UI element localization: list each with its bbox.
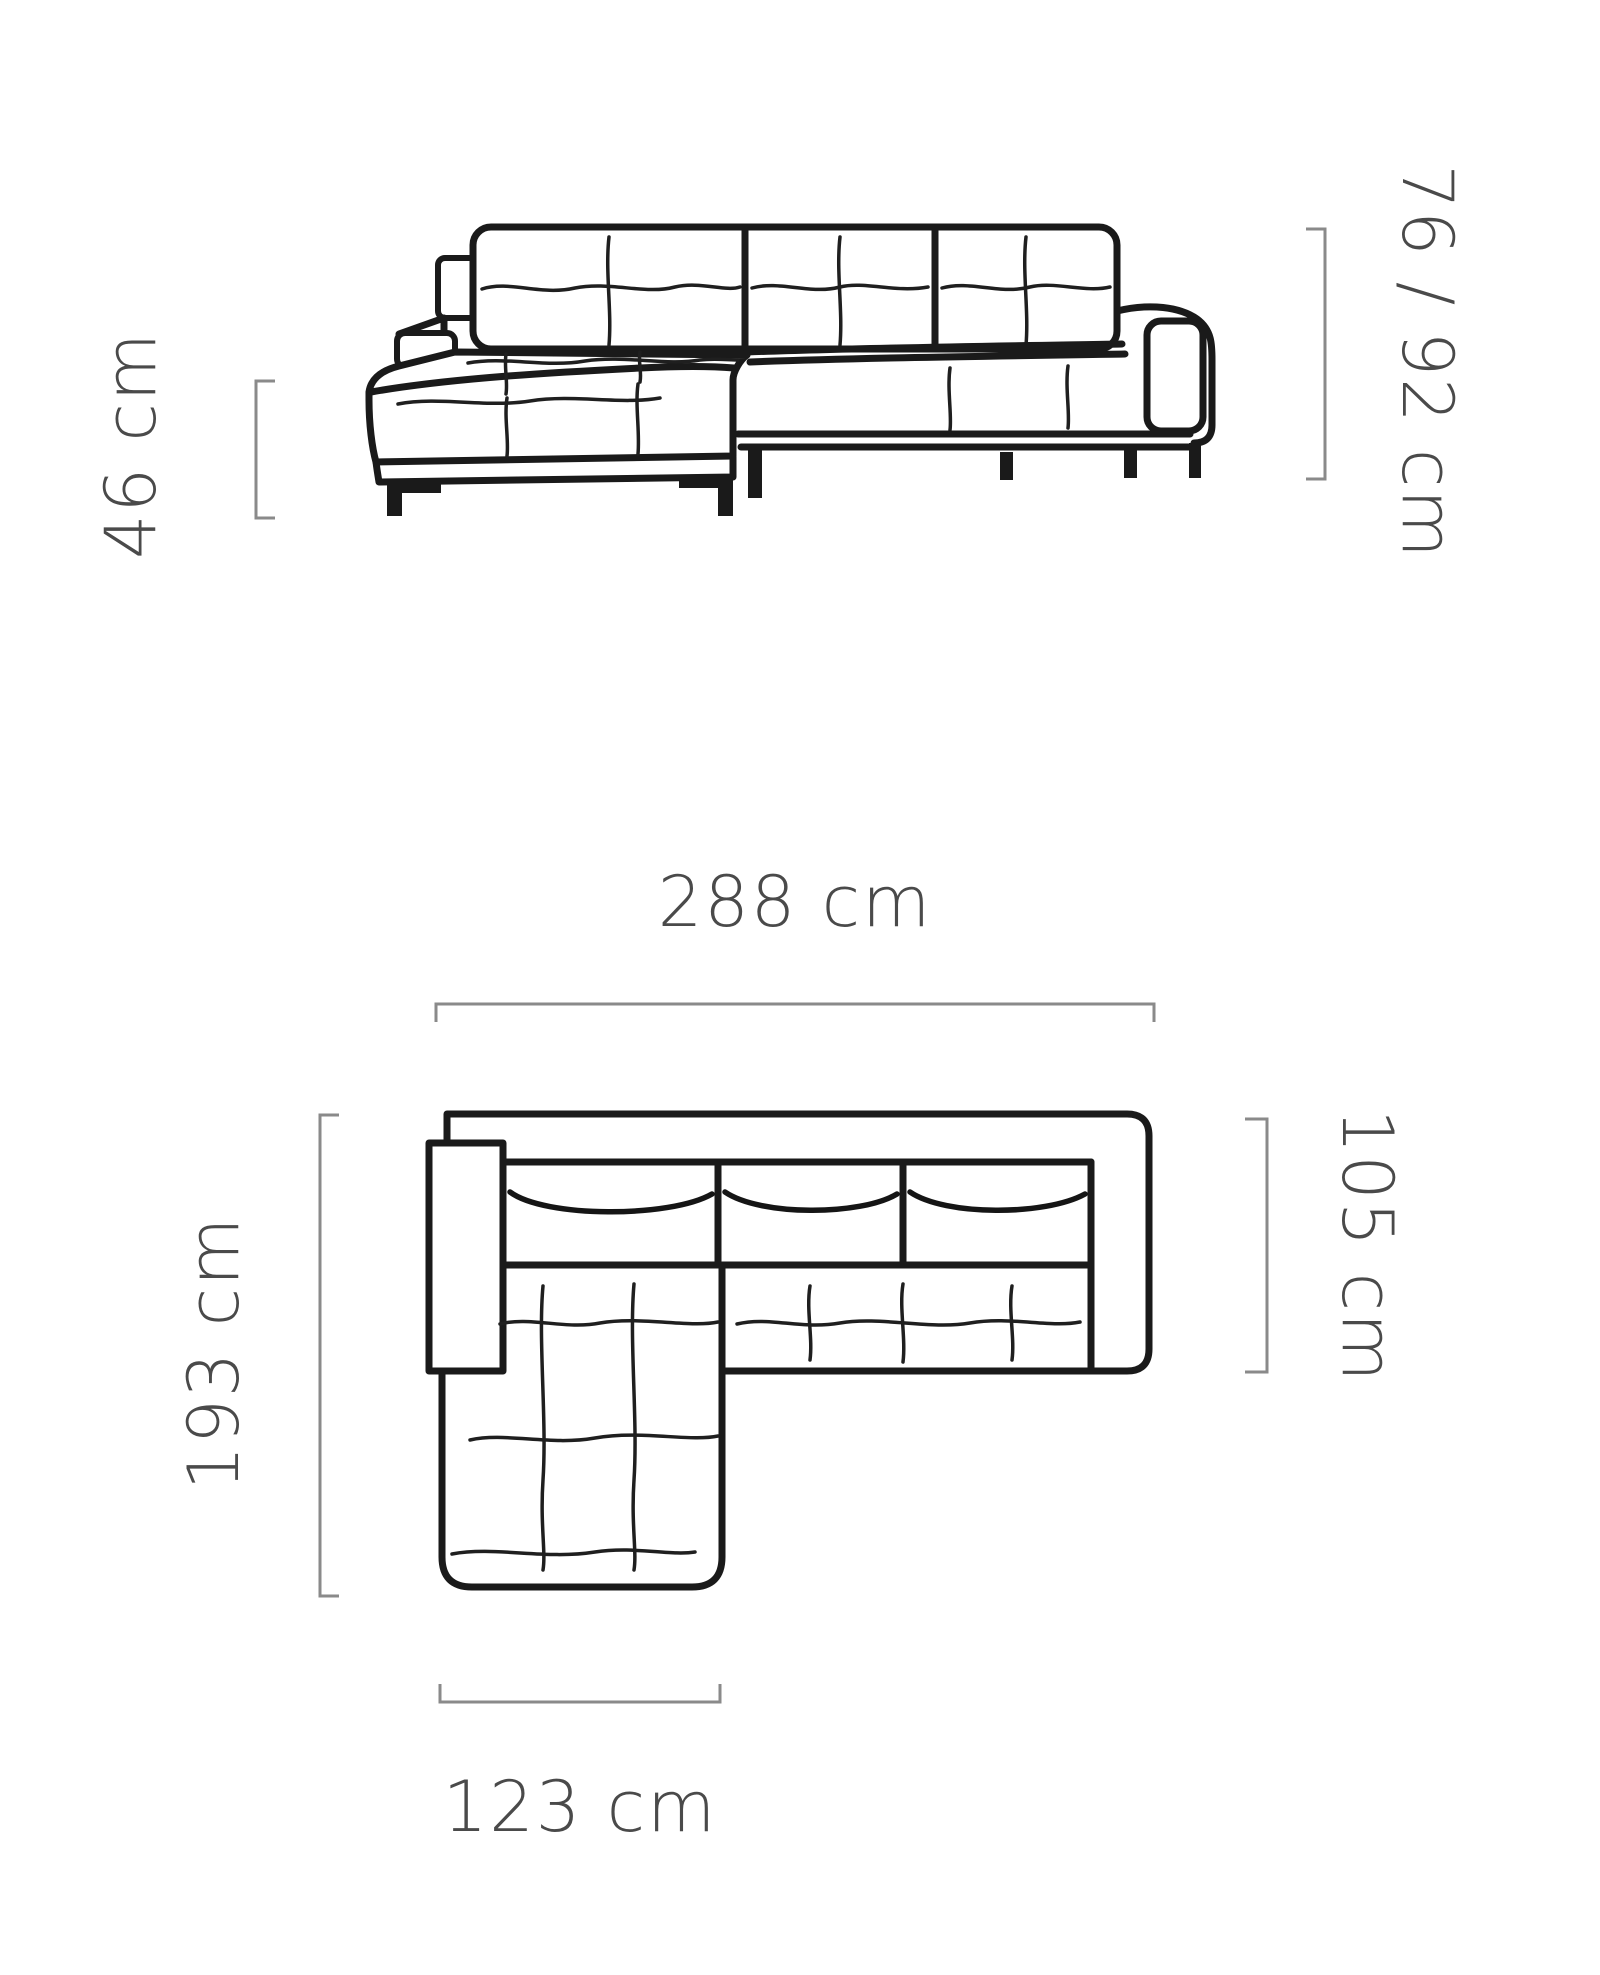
total-width-bracket: [436, 1004, 1154, 1022]
sofa-leg: [748, 450, 762, 498]
sofa-front-view-drawing: [369, 227, 1212, 516]
sofa-depth-bracket: [1245, 1119, 1267, 1372]
sofa-leg: [1000, 452, 1013, 480]
chaise-width-bracket: [440, 1684, 720, 1702]
total-depth-bracket: [320, 1115, 339, 1596]
sofa-leg: [679, 477, 733, 488]
right-armrest-outline: [1147, 321, 1203, 431]
sofa-leg: [1124, 450, 1137, 478]
sofa-leg: [387, 482, 441, 493]
sofa-depth-label: 105 cm: [1332, 1109, 1402, 1384]
chaise-width-label: 123 cm: [443, 1772, 718, 1842]
total-width-label: 288 cm: [658, 867, 933, 937]
seat-height-label: 46 cm: [96, 331, 166, 559]
total-height-bracket: [1306, 229, 1325, 479]
dimension-diagram: 46 cm 76 / 92 cm 288 cm 193 cm 105 cm 12…: [0, 0, 1600, 1975]
total-height-label: 76 / 92 cm: [1392, 164, 1462, 559]
total-depth-label: 193 cm: [179, 1216, 249, 1491]
sofa-top-view-drawing: [429, 1114, 1149, 1587]
sofa-line-art: [0, 0, 1600, 1975]
seat-height-bracket: [256, 381, 275, 518]
plan-left-armrest: [429, 1143, 503, 1371]
sofa-leg: [1189, 443, 1201, 478]
